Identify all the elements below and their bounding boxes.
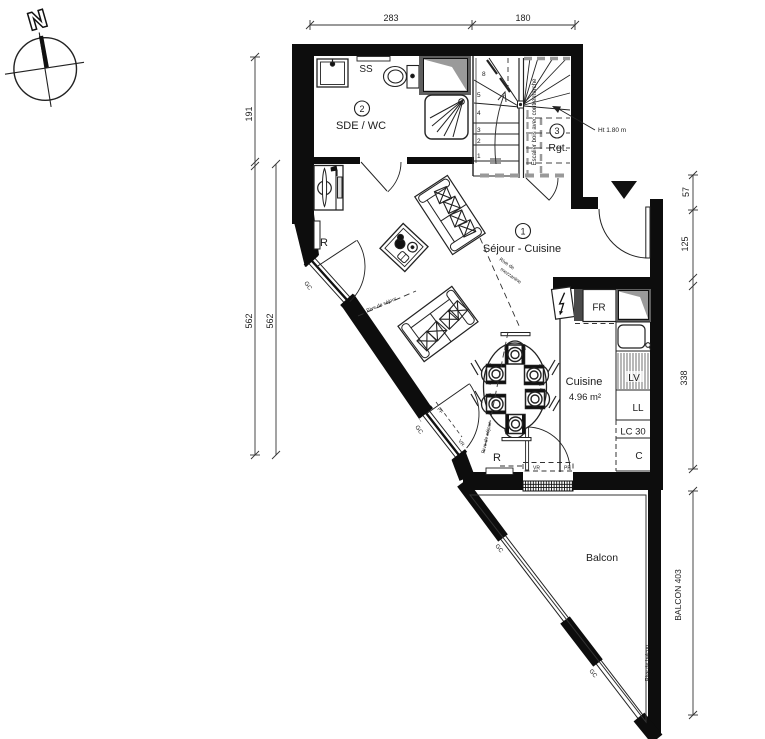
svg-text:5: 5 <box>477 92 481 99</box>
svg-text:Ht 1.80 m: Ht 1.80 m <box>598 127 626 134</box>
svg-text:LC 30: LC 30 <box>620 427 645 438</box>
svg-text:Séjour - Cuisine: Séjour - Cuisine <box>483 243 561 255</box>
svg-text:8: 8 <box>482 71 486 78</box>
svg-text:VR: VR <box>533 466 540 472</box>
svg-text:4.96 m²: 4.96 m² <box>569 392 601 403</box>
svg-text:BALCON 403: BALCON 403 <box>673 569 683 621</box>
svg-text:180: 180 <box>515 13 530 23</box>
svg-text:Balcon: Balcon <box>586 552 618 564</box>
svg-text:1: 1 <box>520 227 525 237</box>
svg-text:Escalier bois avec contremarch: Escalier bois avec contremarche <box>532 78 538 165</box>
svg-text:R: R <box>493 452 501 464</box>
svg-text:Cuisine: Cuisine <box>566 376 603 388</box>
svg-text:3: 3 <box>554 126 559 136</box>
svg-text:338: 338 <box>679 370 689 385</box>
svg-text:2: 2 <box>477 138 481 145</box>
svg-text:1: 1 <box>477 153 481 160</box>
svg-text:57: 57 <box>681 187 691 197</box>
svg-text:SS: SS <box>359 64 373 75</box>
svg-text:2: 2 <box>359 104 364 114</box>
svg-text:3: 3 <box>477 127 481 134</box>
svg-text:4: 4 <box>477 110 481 117</box>
svg-text:Rive de balcon: Rive de balcon <box>645 645 651 681</box>
svg-text:125: 125 <box>680 236 690 251</box>
svg-text:562: 562 <box>244 313 254 328</box>
svg-text:Rgt.: Rgt. <box>548 142 567 154</box>
svg-text:LL: LL <box>632 403 644 414</box>
svg-text:562: 562 <box>265 313 275 328</box>
svg-text:283: 283 <box>383 13 398 23</box>
svg-text:191: 191 <box>244 106 254 121</box>
svg-text:PF: PF <box>564 466 570 472</box>
svg-text:SDE / WC: SDE / WC <box>336 120 386 132</box>
svg-text:C: C <box>635 451 642 462</box>
svg-text:FR: FR <box>592 303 605 314</box>
svg-text:LV: LV <box>628 373 640 384</box>
svg-text:R: R <box>320 237 328 249</box>
